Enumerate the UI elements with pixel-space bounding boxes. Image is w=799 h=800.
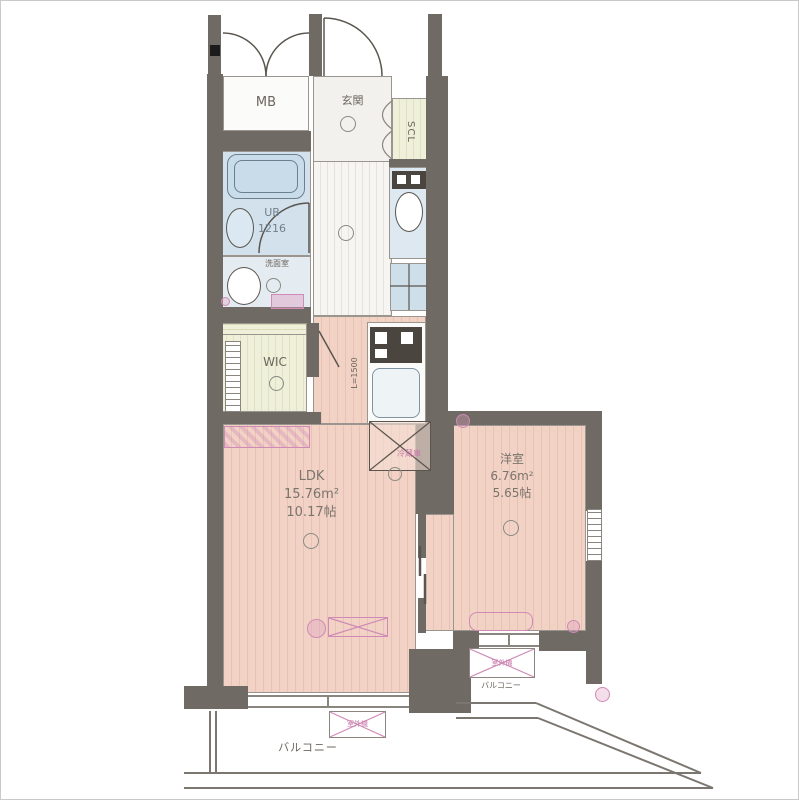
washroom-label: 洗面室 <box>253 258 301 270</box>
wall-cap <box>210 45 220 56</box>
balcony-right-label: バルコニー <box>471 680 531 692</box>
wall <box>309 14 322 76</box>
light-symbol-entrance <box>340 116 356 132</box>
wall <box>586 561 602 684</box>
entrance-label: 玄関 <box>313 93 392 109</box>
light-symbol-hall <box>338 225 354 241</box>
wall <box>223 693 248 709</box>
wall <box>307 323 319 377</box>
mb-label: MB <box>223 76 309 131</box>
sofa-sketch <box>469 612 533 631</box>
refrigerator-label: 冷蔵庫 <box>389 448 429 460</box>
light-symbol-washroom <box>266 278 281 293</box>
bath-size-label: 1216 <box>241 220 303 238</box>
light-symbol-wic <box>269 376 284 391</box>
wall <box>418 598 426 633</box>
accent-dot <box>221 297 230 306</box>
wall <box>586 411 602 511</box>
wall <box>428 14 442 76</box>
bed-sketch <box>328 617 388 637</box>
wic-shelf <box>219 323 307 335</box>
wall <box>418 514 426 558</box>
western-room-name-label: 洋室 <box>453 451 571 467</box>
stove-burner <box>375 349 387 358</box>
western-room-area-jo-label: 5.65帖 <box>453 485 571 501</box>
wall <box>539 631 586 651</box>
wall <box>207 307 311 323</box>
ldk-name-label: LDK <box>259 469 364 485</box>
bed-pillow-sketch <box>307 619 326 638</box>
wic-shelving <box>225 341 241 412</box>
hallway-floor <box>313 161 392 316</box>
western-room-area-m2-label: 6.76m² <box>453 468 571 484</box>
counter-sketch <box>224 426 310 448</box>
toilet-tank-detail <box>397 175 406 184</box>
western-room-floor-ext <box>426 514 454 631</box>
kitchen-counter-length-label: L=1500 <box>325 365 385 381</box>
outdoor-unit-left-label: 室外機 <box>329 714 386 735</box>
bedroom-balcony-window <box>479 633 539 647</box>
bathtub-inner <box>234 160 298 193</box>
balcony-left-label: バルコニー <box>263 741 353 755</box>
stove-burner <box>401 332 413 344</box>
bedroom-side-window <box>587 509 602 561</box>
light-symbol-kitchen <box>388 467 402 481</box>
light-symbol-ldk <box>303 533 319 549</box>
light-symbol-bedroom <box>503 520 519 536</box>
ldk-area-jo-label: 10.17帖 <box>259 505 364 521</box>
washroom-fixture <box>271 294 304 309</box>
wic-label: WIC <box>253 354 297 370</box>
toilet-tank-detail <box>411 175 420 184</box>
plant-sketch <box>456 414 470 428</box>
window-divider <box>327 697 329 706</box>
wall <box>207 74 223 691</box>
outdoor-unit-right-label: 室外機 <box>469 652 535 674</box>
ldk-balcony-window <box>248 695 409 708</box>
stove-burner <box>375 332 387 344</box>
toilet-bowl <box>395 192 423 232</box>
wall <box>409 649 471 713</box>
wall <box>207 412 321 424</box>
plant-sketch <box>595 687 610 702</box>
wall <box>389 159 428 167</box>
washbasin <box>227 267 261 305</box>
window-divider <box>508 635 510 645</box>
washer-space-floor <box>390 263 428 311</box>
plant-sketch <box>567 620 580 633</box>
ldk-area-m2-label: 15.76m² <box>259 487 364 503</box>
wall <box>219 131 311 151</box>
shoe-closet-label: SCL <box>381 114 439 150</box>
refrigerator-space <box>369 421 431 471</box>
floor-plan: MB 玄関 SCL UB 1216 洗面室 WIC L=1500 冷蔵庫 LDK… <box>0 0 799 800</box>
